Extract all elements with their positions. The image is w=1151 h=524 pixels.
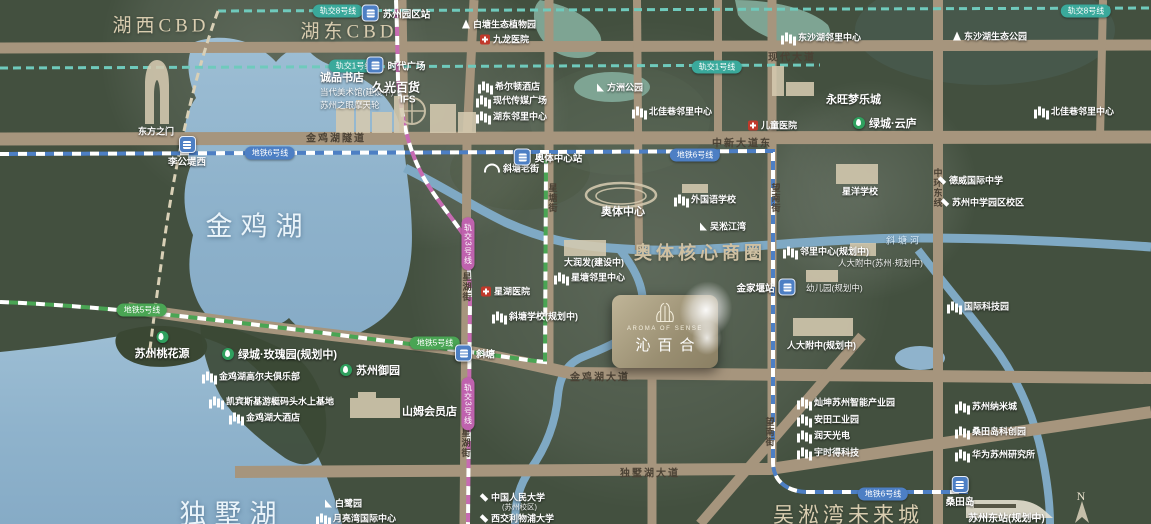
poi-label: 白鹭园 <box>325 497 362 510</box>
poi-label: 国际科技园 <box>947 300 1009 313</box>
metro-line-label: 轨交3号线 <box>462 217 475 270</box>
poi-text: 外国语学校 <box>691 193 736 206</box>
poi-text: 白塘生态植物园 <box>473 18 536 31</box>
poi-text: 东沙湖生态公园 <box>964 30 1027 43</box>
poi-text: 星湖医院 <box>494 285 530 298</box>
school-icon <box>938 176 946 184</box>
cross-icon <box>481 286 491 296</box>
road-label: 星湖街 <box>460 428 473 458</box>
cross-icon <box>748 120 758 130</box>
building-icon <box>480 96 483 105</box>
poi-text: 宇时得科技 <box>814 446 859 459</box>
metro-station: 时代广场 <box>366 57 425 74</box>
poi-text: 凯宾斯基游艇码头水上基地 <box>226 395 334 408</box>
metro-station-icon <box>362 5 379 22</box>
metro-line-label: 轨交3号线 <box>462 377 475 430</box>
station-name: 奥体中心站 <box>535 150 583 164</box>
building-icon <box>496 312 499 321</box>
tree-icon <box>953 32 961 41</box>
project-name-cn: 沁百合 <box>628 334 701 355</box>
road-label: 金鸡湖隧道 <box>306 130 366 145</box>
poi-text: 苏州东站(规划中) <box>968 510 1045 524</box>
metro-line-label: 地铁5号线 <box>410 337 460 350</box>
poi-label: 永旺梦乐城 <box>826 91 881 107</box>
poi-text: 白鹭园 <box>335 497 362 510</box>
poi-text: 人大附中(苏州·规划中) <box>838 257 923 269</box>
poi-label: 现代传媒广场 <box>476 94 547 107</box>
poi-label: 久光百货 <box>372 79 420 96</box>
poi-label: 苏州之眼摩天轮 <box>320 99 380 111</box>
greentown-logo-icon <box>156 331 168 343</box>
building-icon <box>801 448 804 457</box>
lily-logo-icon <box>652 299 678 325</box>
building-icon <box>636 107 639 116</box>
building-icon <box>959 402 962 411</box>
building-icon <box>951 302 954 311</box>
greentown-poi: 苏州御园 <box>340 362 400 378</box>
poi-text: 金鸡湖高尔夫俱乐部 <box>219 370 300 383</box>
greentown-logo-icon <box>222 348 234 360</box>
poi-label: 金鸡湖大酒店 <box>229 411 300 424</box>
poi-text: 吴淞江湾 <box>710 220 746 233</box>
station-name: 桑田岛 <box>946 494 975 508</box>
poi-label: 外国语学校 <box>674 193 736 206</box>
metro-station: 桑田岛 <box>946 476 975 508</box>
building-icon <box>558 273 561 282</box>
poi-text: 安田工业园 <box>814 413 859 426</box>
poi-text: 人大附中(规划中) <box>787 339 856 352</box>
metro-line-label: 地铁5号线 <box>117 304 167 317</box>
road-label: 望南街 <box>770 183 783 213</box>
greentown-logo-icon <box>340 364 352 376</box>
metro-station: 金家堰站 <box>736 279 795 296</box>
district-label: 吴淞湾未来城 <box>773 499 923 524</box>
poi-text: 东沙湖邻里中心 <box>798 31 861 44</box>
poi-label: 山姆会员店 <box>402 403 457 419</box>
poi-label: 苏州东站(规划中) <box>968 510 1045 524</box>
district-label: 湖西CBD <box>112 11 209 38</box>
poi-text: 幼儿园(规划中) <box>806 282 863 294</box>
station-name: 时代广场 <box>387 58 425 72</box>
building-icon <box>678 195 681 204</box>
school-icon <box>480 514 488 522</box>
poi-text: 星洋学校 <box>842 185 878 198</box>
metro-station: 奥体中心站 <box>514 149 583 166</box>
metro-station: 李公堤西 <box>168 136 206 168</box>
metro-station-icon <box>951 476 968 493</box>
building-icon <box>801 398 804 407</box>
metro-line-label: 地铁6号线 <box>858 488 908 501</box>
poi-text: 现代传媒广场 <box>493 94 547 107</box>
poi-label: 邻里中心(规划中) <box>783 245 869 258</box>
poi-label: 人大附中(规划中) <box>787 339 856 352</box>
building-icon <box>1038 107 1041 116</box>
poi-text: 奥体中心 <box>601 203 645 219</box>
poi-text: 星塘邻里中心 <box>571 271 625 284</box>
poi-label: 安田工业园 <box>797 413 859 426</box>
metro-station: 苏州园区站 <box>362 5 431 22</box>
poi-label: 东沙湖生态公园 <box>953 30 1027 43</box>
greentown-poi: 绿城·玫瑰园(规划中) <box>222 346 337 362</box>
poi-label: 桑田岛科创园 <box>955 425 1026 438</box>
building-icon <box>801 415 804 424</box>
poi-text: 九龙医院 <box>493 33 529 46</box>
metro-line-label: 地铁6号线 <box>245 147 295 160</box>
poi-label: 苏州纳米城 <box>955 400 1017 413</box>
poi-label: 幼儿园(规划中) <box>806 282 863 294</box>
building-icon <box>213 397 216 406</box>
poi-text: IFS <box>400 95 416 106</box>
metro-station-icon <box>178 136 195 153</box>
poi-text: 德威国际中学 <box>949 174 1003 187</box>
poi-text: 儿童医院 <box>761 119 797 132</box>
poi-text: 苏州纳米城 <box>972 400 1017 413</box>
river-label: 斜塘河 <box>886 234 922 247</box>
poi-label: 诚品书店 <box>320 69 364 85</box>
poi-label: 北佳巷邻里中心 <box>632 105 712 118</box>
station-name: 斜塘 <box>476 346 495 360</box>
poi-text: 邻里中心(规划中) <box>800 245 869 258</box>
lake-label: 金鸡湖 <box>206 205 311 244</box>
poi-label: 九龙医院 <box>480 33 529 46</box>
poi-text: 斜塘学校(规划中) <box>509 310 578 323</box>
poi-text: 华为苏州研究所 <box>972 448 1035 461</box>
sail-icon <box>700 222 707 230</box>
school-icon <box>941 198 949 206</box>
metro-line-label: 轨交8号线 <box>313 5 363 18</box>
poi-text: 金鸡湖大酒店 <box>246 411 300 424</box>
poi-label: 灿坤苏州智能产业园 <box>797 396 895 409</box>
poi-text: 大润发(建设中) <box>564 256 624 269</box>
poi-text: 润天光电 <box>814 429 850 442</box>
poi-label: 月亮湾国际中心 <box>316 512 396 524</box>
road-label: 独墅湖大道 <box>620 465 680 480</box>
lake-label: 独墅湖 <box>180 493 285 524</box>
poi-text: 诚品书店 <box>320 69 364 85</box>
building-icon <box>785 33 788 42</box>
building-icon <box>320 514 323 523</box>
poi-text: 桑田岛科创园 <box>972 425 1026 438</box>
poi-label: 星塘邻里中心 <box>554 271 625 284</box>
poi-text: 月亮湾国际中心 <box>333 512 396 524</box>
metro-station: 斜塘 <box>455 345 495 362</box>
district-label: 奥体核心商圈 <box>634 239 766 265</box>
metro-line-label: 轨交8号线 <box>1061 5 1111 18</box>
poi-label: 方洲公园 <box>597 81 643 94</box>
poi-text: 苏州桃花源 <box>135 345 190 361</box>
poi-label: 华为苏州研究所 <box>955 448 1035 461</box>
building-icon <box>959 450 962 459</box>
tree-icon <box>462 20 470 29</box>
building-icon <box>787 247 790 256</box>
school-icon <box>480 493 488 501</box>
poi-text: 苏州御园 <box>356 362 400 378</box>
poi-text: 苏州中学园区校区 <box>952 196 1024 209</box>
bridge-icon <box>484 164 500 173</box>
building-icon <box>206 372 209 381</box>
poi-text: 绿城·玫瑰园(规划中) <box>238 346 337 362</box>
sail-icon <box>325 499 332 507</box>
road-label: 星塘街 <box>547 183 560 213</box>
poi-label: 东沙湖邻里中心 <box>781 31 861 44</box>
poi-text: 苏州之眼摩天轮 <box>320 99 380 111</box>
poi-text: 北佳巷邻里中心 <box>1051 105 1114 118</box>
poi-text: 山姆会员店 <box>402 403 457 419</box>
poi-label: 凯宾斯基游艇码头水上基地 <box>209 395 334 408</box>
poi-label: 北佳巷邻里中心 <box>1034 105 1114 118</box>
poi-label: IFS <box>400 95 416 106</box>
poi-label: 人大附中(苏州·规划中) <box>838 257 923 269</box>
building-icon <box>801 431 804 440</box>
project-logo-card: AROMA OF SENSE 沁百合 <box>612 295 718 368</box>
road-label: 中新大道东 <box>712 135 772 150</box>
poi-text: 方洲公园 <box>607 81 643 94</box>
poi-text: 永旺梦乐城 <box>826 91 881 107</box>
poi-label: 金鸡湖高尔夫俱乐部 <box>202 370 300 383</box>
greentown-poi: 苏州桃花源 <box>135 331 190 361</box>
poi-label: 宇时得科技 <box>797 446 859 459</box>
poi-text: 希尔顿酒店 <box>495 80 540 93</box>
poi-label: 大润发(建设中) <box>564 256 624 269</box>
location-map: 湖西CBD湖东CBD奥体核心商圈吴淞湾未来城金鸡湖独墅湖现代大道金鸡湖隧道中新大… <box>0 0 1151 524</box>
poi-label: 儿童医院 <box>748 119 797 132</box>
building-icon <box>233 413 236 422</box>
road-label: 星湖街 <box>461 272 474 302</box>
metro-line-label: 轨交1号线 <box>692 61 742 74</box>
metro-line-label: 地铁6号线 <box>670 149 720 162</box>
sail-icon <box>597 83 604 91</box>
poi-text: 绿城·云庐 <box>869 115 917 131</box>
poi-label: 奥体中心 <box>601 203 645 219</box>
poi-label: 湖东邻里中心 <box>476 110 547 123</box>
building-icon <box>480 112 483 121</box>
poi-text: 久光百货 <box>372 79 420 96</box>
map-labels-layer: 湖西CBD湖东CBD奥体核心商圈吴淞湾未来城金鸡湖独墅湖现代大道金鸡湖隧道中新大… <box>0 0 1151 524</box>
poi-text: 国际科技园 <box>964 300 1009 313</box>
poi-label: 白塘生态植物园 <box>462 18 536 31</box>
poi-label: 斜塘学校(规划中) <box>492 310 578 323</box>
station-name: 金家堰站 <box>736 280 774 294</box>
road-label: 望南街 <box>764 417 777 447</box>
poi-text: 北佳巷邻里中心 <box>649 105 712 118</box>
poi-label: 苏州中学园区校区 <box>941 196 1024 209</box>
lily-flower-image <box>692 321 722 355</box>
poi-label: 德威国际中学 <box>938 174 1003 187</box>
compass-north-label: N <box>1077 489 1086 504</box>
greentown-poi: 绿城·云庐 <box>853 115 917 131</box>
poi-label: 润天光电 <box>797 429 850 442</box>
station-name: 李公堤西 <box>168 154 206 168</box>
poi-text: 湖东邻里中心 <box>493 110 547 123</box>
metro-station-icon <box>366 57 383 74</box>
metro-station-icon <box>455 345 472 362</box>
poi-label: 星湖医院 <box>481 285 530 298</box>
poi-label: 西交利物浦大学 <box>480 512 554 524</box>
poi-label: 星洋学校 <box>842 185 878 198</box>
metro-station-icon <box>779 279 796 296</box>
station-name: 苏州园区站 <box>383 6 431 20</box>
metro-station-icon <box>514 149 531 166</box>
greentown-logo-icon <box>853 117 865 129</box>
building-icon <box>482 82 485 91</box>
cross-icon <box>480 34 490 44</box>
road-label: 现代大道 <box>768 49 816 64</box>
road-label: 金鸡湖大道 <box>570 369 630 384</box>
poi-label: 希尔顿酒店 <box>478 80 540 93</box>
building-icon <box>959 427 962 436</box>
poi-text: 灿坤苏州智能产业园 <box>814 396 895 409</box>
poi-text: 西交利物浦大学 <box>491 512 554 524</box>
poi-label: 吴淞江湾 <box>700 220 746 233</box>
